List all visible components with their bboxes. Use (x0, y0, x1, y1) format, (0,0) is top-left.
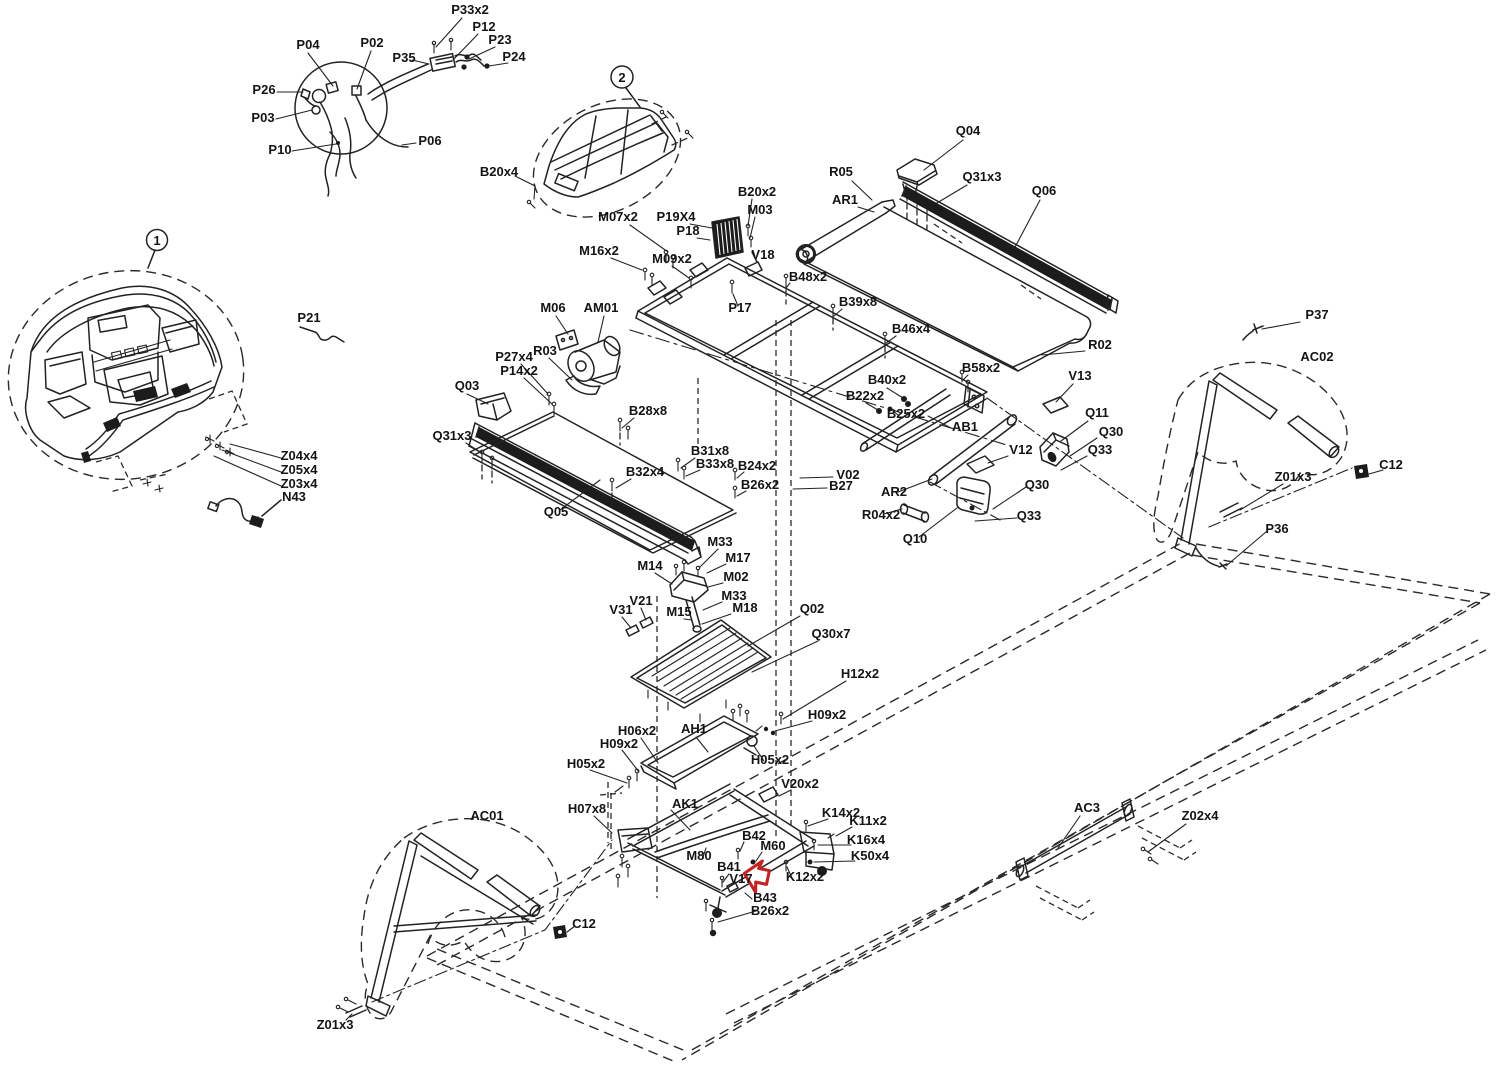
svg-text:M07x2: M07x2 (598, 209, 638, 224)
svg-text:P03: P03 (251, 110, 274, 125)
svg-text:B22x2: B22x2 (846, 388, 884, 403)
svg-text:Q31x3: Q31x3 (432, 428, 471, 443)
svg-text:H12x2: H12x2 (841, 666, 879, 681)
svg-text:K12x2: K12x2 (786, 869, 824, 884)
svg-text:H09x2: H09x2 (600, 736, 638, 751)
svg-text:N43: N43 (282, 489, 306, 504)
svg-text:Q06: Q06 (1032, 183, 1057, 198)
svg-text:K16x4: K16x4 (847, 832, 886, 847)
svg-text:Q30: Q30 (1099, 424, 1124, 439)
svg-text:Q30x7: Q30x7 (811, 626, 850, 641)
svg-text:P33x2: P33x2 (451, 2, 489, 17)
svg-text:P14x2: P14x2 (500, 363, 538, 378)
svg-text:P26: P26 (252, 82, 275, 97)
svg-text:P37: P37 (1305, 307, 1328, 322)
svg-text:B40x2: B40x2 (868, 372, 906, 387)
svg-text:R05: R05 (829, 164, 853, 179)
svg-text:Q30: Q30 (1025, 477, 1050, 492)
svg-text:P21: P21 (297, 310, 320, 325)
svg-text:M15: M15 (666, 604, 691, 619)
svg-text:C12: C12 (1379, 457, 1403, 472)
svg-text:M60: M60 (760, 838, 785, 853)
svg-text:M33: M33 (707, 534, 732, 549)
svg-text:V13: V13 (1068, 368, 1091, 383)
svg-text:M18: M18 (732, 600, 757, 615)
svg-text:AM01: AM01 (584, 300, 619, 315)
svg-text:R04x2: R04x2 (862, 507, 900, 522)
svg-text:K11x2: K11x2 (849, 813, 887, 828)
svg-text:P27x4: P27x4 (495, 349, 533, 364)
svg-text:AC01: AC01 (470, 808, 503, 823)
svg-text:C12: C12 (572, 916, 596, 931)
svg-text:AR1: AR1 (832, 192, 858, 207)
svg-text:V12: V12 (1009, 442, 1032, 457)
svg-text:P17: P17 (728, 300, 751, 315)
svg-text:2: 2 (618, 70, 625, 85)
svg-text:B39x8: B39x8 (839, 294, 877, 309)
svg-text:AK1: AK1 (672, 796, 698, 811)
svg-text:M16x2: M16x2 (579, 243, 619, 258)
svg-text:R03: R03 (533, 343, 557, 358)
svg-text:B24x2: B24x2 (738, 458, 776, 473)
svg-text:P06: P06 (418, 133, 441, 148)
svg-text:H09x2: H09x2 (808, 707, 846, 722)
svg-text:V20x2: V20x2 (781, 776, 819, 791)
svg-text:Z04x4: Z04x4 (281, 448, 319, 463)
svg-text:B33x8: B33x8 (696, 456, 734, 471)
svg-text:M09x2: M09x2 (652, 251, 692, 266)
svg-text:Q05: Q05 (544, 504, 569, 519)
svg-text:P19X4: P19X4 (656, 209, 696, 224)
svg-text:Q04: Q04 (956, 123, 981, 138)
svg-text:M06: M06 (540, 300, 565, 315)
svg-text:H07x8: H07x8 (568, 801, 606, 816)
svg-text:Z01x3: Z01x3 (317, 1017, 354, 1032)
svg-text:Q11: Q11 (1085, 405, 1109, 420)
svg-text:B48x2: B48x2 (789, 269, 827, 284)
svg-text:AC3: AC3 (1074, 800, 1100, 815)
svg-text:P36: P36 (1265, 521, 1288, 536)
svg-text:Q10: Q10 (903, 531, 928, 546)
svg-text:B20x2: B20x2 (738, 184, 776, 199)
svg-text:M14: M14 (637, 558, 663, 573)
svg-text:B28x8: B28x8 (629, 403, 667, 418)
svg-text:V17: V17 (729, 871, 752, 886)
svg-text:B46x4: B46x4 (892, 321, 931, 336)
svg-text:K50x4: K50x4 (851, 848, 890, 863)
svg-text:V18: V18 (751, 247, 774, 262)
svg-text:AH1: AH1 (681, 721, 707, 736)
svg-text:H05x2: H05x2 (567, 756, 605, 771)
svg-text:B26x2: B26x2 (741, 477, 779, 492)
svg-text:P24: P24 (502, 49, 526, 64)
svg-text:M02: M02 (723, 569, 748, 584)
svg-text:B26x2: B26x2 (751, 903, 789, 918)
svg-text:AB1: AB1 (952, 419, 978, 434)
svg-text:Q03: Q03 (455, 378, 480, 393)
svg-text:P35: P35 (392, 50, 415, 65)
svg-text:B58x2: B58x2 (962, 360, 1000, 375)
svg-text:B25x2: B25x2 (887, 406, 925, 421)
svg-text:AR2: AR2 (881, 484, 907, 499)
svg-text:H05x2: H05x2 (751, 752, 789, 767)
svg-text:Q33: Q33 (1088, 442, 1113, 457)
svg-text:P10: P10 (268, 142, 291, 157)
svg-text:AC02: AC02 (1300, 349, 1333, 364)
svg-text:Z05x4: Z05x4 (281, 462, 319, 477)
svg-text:R02: R02 (1088, 337, 1112, 352)
svg-text:V31: V31 (609, 602, 632, 617)
svg-text:Q31x3: Q31x3 (962, 169, 1001, 184)
svg-text:V21: V21 (629, 593, 652, 608)
svg-text:B32x4: B32x4 (626, 464, 665, 479)
svg-text:B20x4: B20x4 (480, 164, 519, 179)
svg-text:P04: P04 (296, 37, 320, 52)
svg-text:P02: P02 (360, 35, 383, 50)
svg-text:M80: M80 (686, 848, 711, 863)
svg-text:B27: B27 (829, 478, 853, 493)
svg-text:M17: M17 (725, 550, 750, 565)
svg-text:Z02x4: Z02x4 (1182, 808, 1220, 823)
svg-text:Q33: Q33 (1017, 508, 1042, 523)
svg-text:Q02: Q02 (800, 601, 825, 616)
svg-text:Z01x3: Z01x3 (1275, 469, 1312, 484)
svg-text:P18: P18 (676, 223, 699, 238)
svg-text:M03: M03 (747, 202, 772, 217)
svg-text:1: 1 (153, 233, 160, 248)
svg-text:P23: P23 (488, 32, 511, 47)
